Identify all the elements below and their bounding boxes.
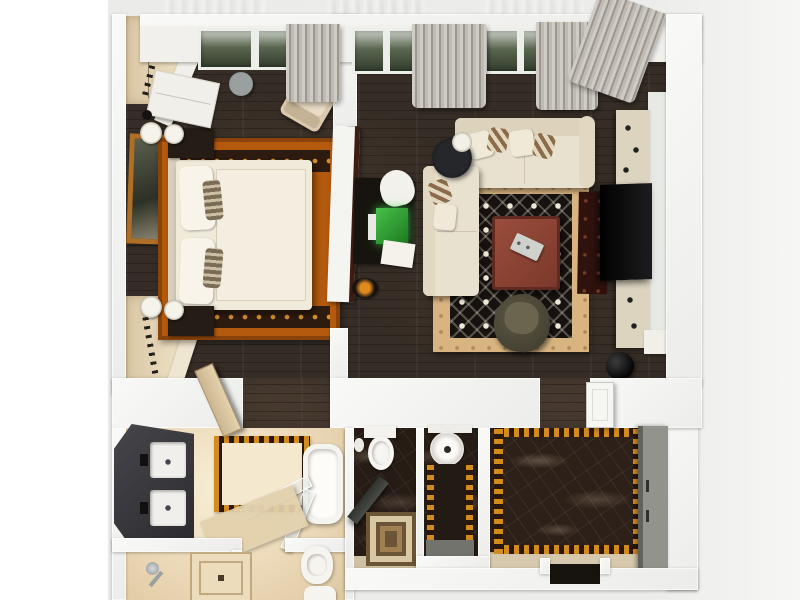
vanity <box>114 424 194 548</box>
toilet-bowl <box>368 436 394 470</box>
shower-wall-left <box>112 538 242 552</box>
washer-door-dot <box>444 446 451 453</box>
toilet-seat <box>372 441 390 465</box>
table-lamp <box>452 132 472 152</box>
room-bathroom <box>112 428 354 600</box>
accent-pillow <box>433 203 458 231</box>
runner-edge-left <box>427 464 434 540</box>
entry-door-jamb <box>600 558 610 574</box>
table-lamp <box>140 122 162 144</box>
bidet <box>301 546 333 584</box>
window-mullion <box>383 31 390 71</box>
table-lamp <box>164 300 184 320</box>
desk-keyboard <box>368 214 376 240</box>
entry-rug <box>494 428 642 554</box>
vanity-faucet <box>140 454 148 466</box>
wc-wall-left <box>345 428 354 568</box>
window-mullion <box>517 31 524 71</box>
window-mullion <box>251 31 259 67</box>
desk-papers <box>380 240 415 268</box>
entry-wardrobe <box>638 426 668 574</box>
bed-duvet <box>216 169 306 301</box>
dresser-drawer-line <box>156 92 211 105</box>
laundry-wall-right <box>478 428 490 568</box>
black-vase <box>606 352 634 380</box>
laundry-runner <box>427 464 473 540</box>
dresser-knob <box>142 110 152 120</box>
wardrobe-handle <box>646 510 649 522</box>
entry-door-threshold <box>550 564 600 584</box>
drain-mat <box>190 552 252 600</box>
sofa-seat-line <box>437 231 477 232</box>
wardrobe-handle <box>646 480 649 492</box>
accent-pillow <box>486 126 510 153</box>
sofa-armrest-right <box>579 116 595 188</box>
runner-edge-right <box>466 464 473 540</box>
lounge-chair-cushion <box>503 300 540 335</box>
room-wc <box>345 428 424 588</box>
entry-rug-field <box>503 437 633 545</box>
curtain <box>286 24 340 102</box>
laptop-screen <box>376 208 408 244</box>
vanity-sink <box>150 490 186 526</box>
floor-plan-canvas <box>0 0 800 600</box>
table-lamp <box>164 124 184 144</box>
wall-stub-hall <box>330 328 348 380</box>
toilet-partial <box>304 586 336 600</box>
entry-rug-border-left <box>494 428 503 554</box>
drain-center <box>218 575 224 581</box>
washing-machine <box>430 432 464 466</box>
outer-wall-left <box>112 14 126 394</box>
bathtub-basin <box>308 449 338 519</box>
entry-rug-border-bottom <box>494 545 642 554</box>
bed <box>176 160 312 310</box>
drain-mat-inner <box>199 561 243 595</box>
entry-rug-border-top <box>494 428 642 437</box>
wc-wall-right <box>416 428 424 568</box>
wc-mat-core <box>385 531 397 547</box>
curtain <box>412 24 486 108</box>
wc-mat <box>366 512 416 566</box>
bidet-basin <box>307 554 327 576</box>
toilet-paper-holder <box>354 438 364 452</box>
media-cabinet-top <box>616 110 650 186</box>
wc-mat-inner <box>376 522 406 556</box>
floor-bowl <box>352 278 378 298</box>
round-side-table <box>229 72 253 96</box>
middle-wall-center <box>330 378 540 428</box>
accent-pillow <box>202 247 223 288</box>
entry-door-jamb <box>540 558 550 574</box>
outer-wall-right-upper <box>666 14 702 386</box>
table-lamp <box>140 296 162 318</box>
vanity-sink <box>150 442 186 478</box>
vanity-faucet <box>140 502 148 514</box>
interior-door-leaf <box>586 382 614 428</box>
tv-screen <box>600 183 652 281</box>
outer-wall-bottom <box>345 568 698 590</box>
door-panel-line <box>592 389 608 421</box>
